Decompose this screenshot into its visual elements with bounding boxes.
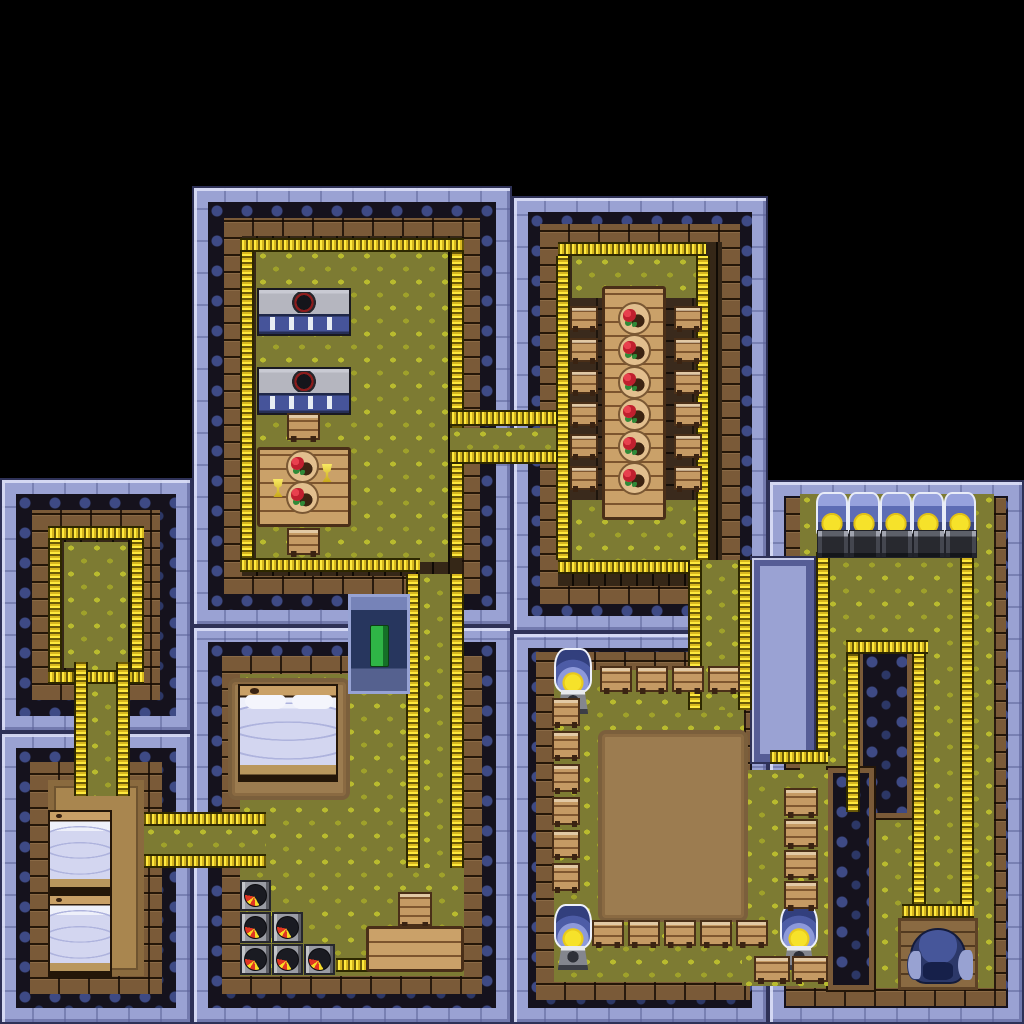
stool[interactable] bbox=[674, 338, 702, 362]
single-bed[interactable] bbox=[48, 810, 112, 894]
yellow-fence bbox=[74, 662, 88, 796]
bench[interactable] bbox=[628, 920, 660, 946]
incubator-lamp-machine[interactable] bbox=[848, 492, 880, 558]
yellow-fence bbox=[556, 256, 570, 560]
building-interior-map bbox=[0, 0, 1024, 1024]
bench[interactable] bbox=[552, 863, 580, 891]
dome-lamp[interactable] bbox=[554, 904, 592, 970]
bench[interactable] bbox=[792, 956, 828, 982]
bench[interactable] bbox=[700, 920, 732, 946]
bench[interactable] bbox=[784, 850, 818, 878]
single-bed[interactable] bbox=[48, 894, 112, 978]
yellow-fence bbox=[450, 452, 464, 558]
plate-of-food[interactable] bbox=[286, 450, 319, 483]
bench[interactable] bbox=[552, 764, 580, 792]
fire-pot[interactable] bbox=[304, 944, 335, 975]
yellow-fence bbox=[450, 450, 562, 464]
yellow-fence bbox=[902, 904, 974, 918]
stool[interactable] bbox=[674, 466, 702, 490]
storage-floor bbox=[50, 528, 142, 682]
incubator-lamp-machine[interactable] bbox=[880, 492, 912, 558]
double-bed[interactable] bbox=[238, 684, 338, 782]
stool[interactable] bbox=[570, 338, 598, 362]
machine-room-west-wall bbox=[750, 556, 816, 764]
stove-counter[interactable] bbox=[257, 367, 351, 415]
bench[interactable] bbox=[552, 830, 580, 858]
throne-chair[interactable] bbox=[910, 928, 966, 984]
plate-of-food[interactable] bbox=[618, 462, 651, 495]
yellow-fence bbox=[770, 750, 828, 764]
corridor-twin-bedroom-to-master-bedroom bbox=[144, 826, 266, 854]
bench[interactable] bbox=[636, 666, 668, 692]
yellow-fence bbox=[912, 654, 926, 922]
corridor-kitchen-to-master-bedroom bbox=[420, 574, 450, 868]
bench[interactable] bbox=[552, 797, 580, 825]
stool[interactable] bbox=[674, 434, 702, 458]
bench[interactable] bbox=[784, 819, 818, 847]
storage-floor-inner bbox=[64, 542, 128, 668]
yellow-fence bbox=[846, 640, 928, 654]
stool[interactable] bbox=[570, 370, 598, 394]
plate-of-food[interactable] bbox=[618, 302, 651, 335]
yellow-fence bbox=[48, 526, 144, 540]
yellow-fence bbox=[450, 252, 464, 428]
bench[interactable] bbox=[664, 920, 696, 946]
yellow-fence bbox=[240, 252, 254, 558]
sparring-arena-dirt bbox=[598, 730, 748, 922]
plate-of-food[interactable] bbox=[618, 398, 651, 431]
plate-of-food[interactable] bbox=[618, 366, 651, 399]
stool[interactable] bbox=[570, 306, 598, 330]
bench[interactable] bbox=[672, 666, 704, 692]
bench[interactable] bbox=[600, 666, 632, 692]
yellow-fence bbox=[240, 238, 464, 252]
bench[interactable] bbox=[784, 881, 818, 909]
bench[interactable] bbox=[552, 731, 580, 759]
yellow-fence bbox=[450, 410, 562, 426]
fire-pot[interactable] bbox=[272, 912, 303, 943]
yellow-fence bbox=[116, 662, 130, 796]
yellow-fence bbox=[144, 854, 266, 868]
corridor-kitchen-to-dining-hall bbox=[450, 428, 562, 450]
yellow-fence bbox=[130, 540, 144, 670]
plate-of-food[interactable] bbox=[286, 481, 319, 514]
incubator-lamp-machine[interactable] bbox=[816, 492, 848, 558]
yellow-fence bbox=[450, 574, 464, 868]
fire-pot[interactable] bbox=[240, 944, 271, 975]
chair[interactable] bbox=[287, 528, 320, 555]
plate-of-food[interactable] bbox=[618, 430, 651, 463]
stool[interactable] bbox=[674, 370, 702, 394]
bench[interactable] bbox=[784, 788, 818, 816]
yellow-fence bbox=[144, 812, 266, 826]
incubator-lamp-machine[interactable] bbox=[944, 492, 976, 558]
fire-pot[interactable] bbox=[240, 880, 271, 911]
incubator-lamp-machine[interactable] bbox=[912, 492, 944, 558]
yellow-fence bbox=[48, 540, 62, 670]
bench[interactable] bbox=[708, 666, 740, 692]
plate-of-food[interactable] bbox=[618, 334, 651, 367]
display-case-green-book[interactable] bbox=[348, 594, 410, 694]
yellow-fence bbox=[240, 558, 420, 572]
stove-counter[interactable] bbox=[257, 288, 351, 336]
fire-pot[interactable] bbox=[240, 912, 271, 943]
bench[interactable] bbox=[754, 956, 790, 982]
stool[interactable] bbox=[674, 306, 702, 330]
yellow-fence bbox=[960, 552, 974, 924]
stool[interactable] bbox=[674, 402, 702, 426]
yellow-fence bbox=[558, 242, 706, 256]
yellow-fence bbox=[846, 654, 860, 812]
fire-pot[interactable] bbox=[272, 944, 303, 975]
bench[interactable] bbox=[592, 920, 624, 946]
wooden-counter[interactable] bbox=[366, 926, 464, 972]
stool[interactable] bbox=[570, 466, 598, 490]
step-stool[interactable] bbox=[398, 892, 432, 926]
bench[interactable] bbox=[736, 920, 768, 946]
yellow-fence bbox=[336, 958, 370, 972]
yellow-fence bbox=[738, 560, 752, 710]
yellow-fence bbox=[816, 552, 830, 756]
bench[interactable] bbox=[552, 698, 580, 726]
stool[interactable] bbox=[570, 402, 598, 426]
stool[interactable] bbox=[570, 434, 598, 458]
chair[interactable] bbox=[287, 413, 320, 440]
yellow-fence bbox=[558, 560, 700, 574]
